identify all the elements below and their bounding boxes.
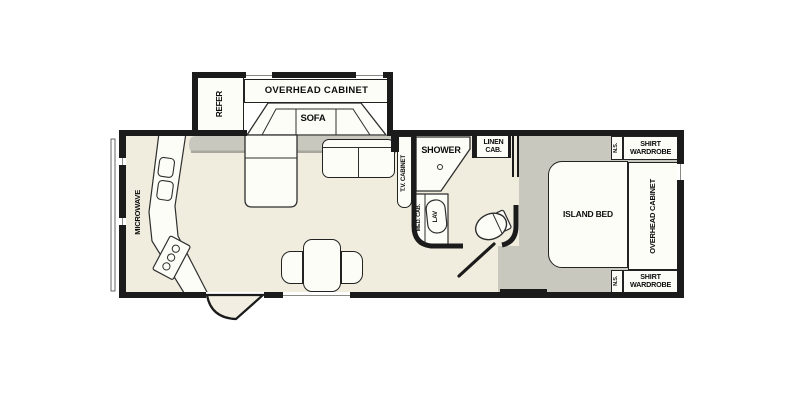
ns-top-label: N.S. bbox=[611, 138, 623, 158]
ns-bottom-label: N.S. bbox=[611, 271, 623, 291]
microwave-label: MICROWAVE bbox=[130, 184, 146, 240]
shirt-wardrobe-bottom-label: SHIRT WARDROBE bbox=[624, 271, 677, 291]
floorplan-canvas: REFER OVERHEAD CABINET SOFA MICROWAVE T.… bbox=[0, 0, 800, 400]
tv-cabinet-label: T.V. CABINET bbox=[397, 142, 412, 204]
slideout-wall-left bbox=[192, 72, 198, 136]
overhead-cabinet-front-label: OVERHEAD CABINET bbox=[246, 82, 387, 100]
entry-door-opening bbox=[206, 292, 264, 298]
wall-top-left bbox=[119, 130, 247, 136]
med-cab-label: MED. CAB. bbox=[414, 196, 425, 240]
overhead-cabinet-bedroom-label: OVERHEAD CABINET bbox=[645, 172, 661, 260]
wall-front-left bbox=[119, 130, 126, 298]
dinette-table bbox=[303, 239, 341, 292]
sofa-chaise bbox=[245, 135, 297, 207]
refer-label: REFER bbox=[212, 80, 229, 128]
dinette-chair-left bbox=[281, 251, 303, 284]
shirt-wardrobe-top-label: SHIRT WARDROBE bbox=[624, 138, 677, 158]
bedroom-step-carpet bbox=[498, 246, 520, 292]
pocket-door-rail-outer bbox=[512, 136, 514, 177]
dinette-chair-right bbox=[341, 251, 363, 284]
island-bed-label: ISLAND BED bbox=[552, 208, 624, 222]
front-cap-line bbox=[111, 139, 115, 291]
window-rear bbox=[677, 164, 684, 180]
window-front-lower bbox=[119, 218, 126, 225]
window-bottom bbox=[283, 292, 350, 298]
wall-bottom bbox=[119, 292, 684, 298]
loveseat bbox=[322, 139, 395, 178]
window-slideout-left bbox=[246, 72, 272, 78]
linen-cab-label: LINEN CAB. bbox=[477, 137, 510, 157]
slideout-wall-right bbox=[387, 72, 393, 136]
wall-shower-linen bbox=[472, 136, 476, 158]
window-front-upper bbox=[119, 158, 126, 165]
shower-label: SHOWER bbox=[415, 144, 467, 158]
loveseat-cushion-line bbox=[358, 147, 359, 178]
window-slideout-right bbox=[356, 72, 383, 78]
wall-rear-right bbox=[677, 130, 684, 298]
pocket-door-rail-inner bbox=[517, 136, 519, 177]
wall-top-right bbox=[391, 130, 684, 136]
sofa-label: SOFA bbox=[288, 112, 338, 127]
lav-label: LAV bbox=[430, 203, 442, 231]
